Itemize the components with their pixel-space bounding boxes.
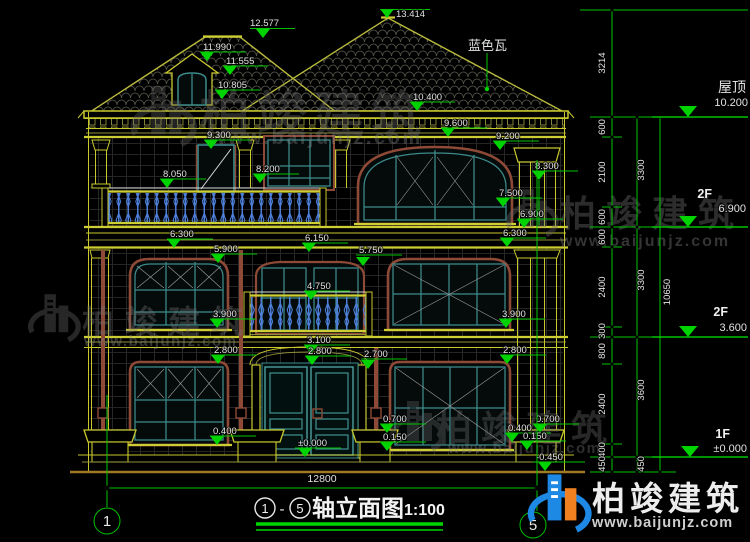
window-3f-right-arched bbox=[354, 147, 516, 224]
mark-ridge-left: 12.577 bbox=[250, 18, 279, 29]
balcony-balustrade-2f bbox=[244, 292, 372, 336]
brand-name: 柏竣建筑 bbox=[592, 480, 744, 517]
title-dash: - bbox=[280, 501, 285, 518]
mark-f1-floor: ±0.000 bbox=[298, 438, 327, 449]
watermark-brand: 柏竣建筑 bbox=[560, 193, 744, 234]
watermark-url: www.baijunjz.com bbox=[209, 127, 423, 149]
dim-chain-b-3: 450 bbox=[636, 456, 647, 472]
mark-f2-band-mid: 6.150 bbox=[305, 233, 329, 244]
mark-f2-door-arch: 5.750 bbox=[359, 245, 383, 256]
mark-ground-right: -0.450 bbox=[536, 452, 563, 463]
level-2f-name: 2F bbox=[713, 305, 728, 319]
title-scale: 1:100 bbox=[404, 502, 445, 519]
mark-f2-band-left: 6.300 bbox=[170, 229, 194, 240]
dim-chain-a-9: 400 bbox=[597, 442, 608, 458]
mark-base-top-right: 0.700 bbox=[536, 414, 560, 425]
mark-f1-arch-apex: 3.100 bbox=[307, 335, 331, 346]
dim-chain-b-2: 3600 bbox=[636, 379, 647, 400]
level-1f-value: ±0.000 bbox=[713, 443, 747, 455]
mark-f3-cornice: 9.600 bbox=[444, 118, 468, 129]
mark-f3-door-top: 9.300 bbox=[207, 130, 231, 141]
mark-f3-win-sill: 6.900 bbox=[520, 209, 544, 220]
mark-f3-win-transom: 7.500 bbox=[499, 188, 523, 199]
mark-f2-band-right: 6.300 bbox=[503, 228, 527, 239]
mark-f2-win-arch-left: 5.900 bbox=[214, 244, 238, 255]
mark-f1-door-top: 2.800 bbox=[308, 346, 332, 357]
mark-f1-sill-left: 0.400 bbox=[213, 426, 237, 437]
level-3f-name: 2F bbox=[697, 187, 712, 201]
balustrade-3f bbox=[102, 188, 326, 228]
mark-f1-win-arch-left: 2.800 bbox=[214, 345, 238, 356]
drawing-title: 1 - 5 轴立面图 1:100 bbox=[255, 495, 445, 530]
watermark-url: www.baijunjz.com bbox=[559, 233, 730, 250]
dim-chain-a-5: 2400 bbox=[597, 276, 608, 297]
brand-logo-icon bbox=[531, 474, 589, 529]
dim-chain-b-1: 3300 bbox=[636, 269, 647, 290]
level-1f-name: 1F bbox=[715, 427, 730, 441]
mark-f3-rail-left: 8.050 bbox=[163, 169, 187, 180]
dim-chain-b-0: 3300 bbox=[636, 159, 647, 180]
level-2f: 2F 3.600 bbox=[652, 305, 748, 337]
level-roof: 屋顶 10.200 bbox=[652, 79, 748, 117]
dim-chain-c-0: 10650 bbox=[662, 279, 673, 305]
brand-logo-footer: 柏竣建筑 www.baijunjz.com bbox=[531, 474, 744, 531]
title-axis-end: 5 bbox=[296, 501, 303, 516]
mark-dormer-sill: 10.805 bbox=[218, 80, 247, 91]
level-roof-value: 10.200 bbox=[714, 97, 748, 109]
axis-number-1: 1 bbox=[103, 513, 111, 530]
dim-chain-a-8: 2400 bbox=[597, 393, 608, 414]
mark-f2-rail-top: 4.750 bbox=[307, 281, 331, 292]
title-axis-start: 1 bbox=[261, 501, 268, 516]
dim-chain-a-1: 600 bbox=[597, 119, 608, 135]
dim-chain-a-0: 3214 bbox=[597, 52, 608, 73]
overall-width-dim: 12800 bbox=[307, 473, 336, 485]
mark-dormer-eave: 11.555 bbox=[226, 56, 254, 67]
mark-f1-win-top-right: 2.700 bbox=[364, 349, 388, 360]
level-1f: 1F ±0.000 bbox=[652, 427, 748, 457]
mark-f1-win-arch-right: 2.800 bbox=[503, 345, 527, 356]
level-2f-value: 3.600 bbox=[719, 322, 747, 334]
mark-f1-sill-mid-top: 0.700 bbox=[383, 414, 407, 425]
level-roof-name: 屋顶 bbox=[718, 79, 746, 95]
mark-dormer-peak: 11.990 bbox=[203, 42, 231, 53]
dim-chain-a-3: 600 bbox=[597, 209, 608, 225]
brand-url: www.baijunjz.com bbox=[591, 515, 733, 531]
mark-f2-win-sill-right: 3.900 bbox=[502, 309, 526, 320]
cad-screenshot: 柏竣建筑 www.baijunjz.com 柏竣建筑 www.baijunjz.… bbox=[0, 0, 750, 542]
mark-f3-col-cap: 8.300 bbox=[535, 161, 559, 172]
dim-chain-a-6: 300 bbox=[597, 323, 608, 339]
mark-f3-rail-mid: 8.200 bbox=[256, 164, 280, 175]
level-3f-value: 6.900 bbox=[718, 203, 746, 215]
dim-chain-a-7: 800 bbox=[597, 343, 608, 359]
title-text: 轴立面图 bbox=[312, 495, 404, 521]
dim-chain-a-10: 450 bbox=[597, 456, 608, 472]
mark-base-low-right: 0.150 bbox=[523, 431, 547, 442]
dim-chain-a-4: 600 bbox=[597, 229, 608, 245]
elevation-drawing-canvas: 柏竣建筑 www.baijunjz.com 柏竣建筑 www.baijunjz.… bbox=[0, 0, 750, 542]
mark-f1-sill-mid-bot: 0.150 bbox=[383, 432, 407, 443]
dim-chain-a-2: 2100 bbox=[597, 161, 608, 182]
mark-f2-win-sill-left: 3.900 bbox=[213, 309, 237, 320]
roof-note-label: 蓝色瓦 bbox=[468, 38, 507, 53]
terrace-door bbox=[197, 145, 236, 192]
mark-ridge-main: 13.414 bbox=[396, 9, 425, 20]
mark-eave-right: 10.400 bbox=[413, 92, 442, 103]
window-2f-right bbox=[384, 259, 514, 330]
mark-f3-win-arch: 9.200 bbox=[496, 131, 520, 142]
